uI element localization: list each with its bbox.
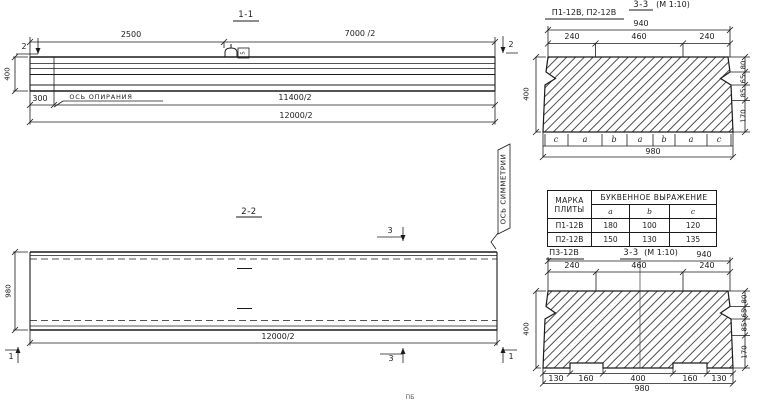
p12-dim-85: 85 [741, 88, 748, 97]
p3-dim-85: 85 [742, 323, 749, 332]
p3-b130-left: 130 [548, 375, 563, 383]
cut-1-right-label: 1 [508, 353, 513, 361]
table-row: П1-12В 180 100 120 [548, 219, 717, 233]
p3-seg-240-left: 240 [564, 262, 579, 270]
p12-dim-65: 65 [741, 74, 748, 83]
p12-letter-c2: c [717, 136, 721, 144]
dim-7000-2: 7000 /2 [345, 30, 376, 38]
cut-3-bottom-label: 3 [388, 355, 393, 363]
table-header-expression: БУКВЕННОЕ ВЫРАЖЕНИЕ [592, 191, 717, 205]
table-cell-a: 150 [592, 233, 630, 247]
dim-11400-2: 11400/2 [278, 94, 311, 102]
table-cell-a: 180 [592, 219, 630, 233]
p3-dim-65: 65 [742, 308, 749, 317]
dim-2500: 2500 [121, 31, 141, 39]
table-header-mark: МАРКА ПЛИТЫ [548, 191, 592, 219]
p12-dim-400: 400 [524, 87, 531, 100]
view-2-2-title: 2-2 [241, 208, 256, 217]
bearing-axis-label: ОСЬ ОПИРАНИЯ [69, 94, 132, 101]
section-p3-scale: (М 1:10) [644, 249, 678, 257]
p3-dim-940: 940 [696, 251, 711, 259]
table-header-mark-line2: ПЛИТЫ [548, 205, 591, 214]
section-p12-scale: (М 1:10) [656, 1, 690, 9]
lifting-loop-tag: 5 [241, 51, 247, 55]
dim-400-elevation: 400 [5, 67, 12, 80]
p3-seg-460: 460 [631, 262, 646, 270]
view-1-1-linework [12, 21, 518, 125]
dim-980-plan: 980 [6, 284, 13, 297]
table-cell-b: 130 [630, 233, 670, 247]
p12-dim-80: 80 [741, 60, 748, 69]
symmetry-axis-label: ОСЬ СИММЕТРИИ [501, 154, 508, 225]
table-cell-mark: П1-12В [548, 219, 592, 233]
drawing-sheet: 1-1 2500 7000 /2 2 2 400 300 ОСЬ ОПИРАНИ… [0, 0, 757, 404]
table-cell-b: 100 [630, 219, 670, 233]
p3-dim-80: 80 [742, 294, 749, 303]
p12-letter-c1: c [554, 136, 558, 144]
section-p12-title: 3-3 [633, 1, 648, 10]
dim-12000-2-elev: 12000/2 [279, 112, 312, 120]
p12-letter-a3: a [689, 136, 694, 144]
section-p3-linework [533, 257, 750, 387]
cut-2-left-label: 2 [21, 43, 26, 51]
p3-b130-right: 130 [711, 375, 726, 383]
view-2-2-linework [5, 217, 517, 363]
p12-seg-240-left: 240 [564, 33, 579, 41]
table-col-c: c [670, 205, 717, 219]
p12-letter-a1: a [583, 136, 588, 144]
section-p3-title: 3-3 [623, 249, 638, 258]
p12-dim-170: 170 [741, 109, 748, 122]
cut-3-top-label: 3 [387, 227, 392, 235]
cut-2-right-label: 2 [508, 41, 513, 49]
p3-b160-right: 160 [682, 375, 697, 383]
p3-b400: 400 [630, 375, 645, 383]
p3-dim-170: 170 [742, 345, 749, 358]
p3-dim-980: 980 [634, 385, 649, 393]
table-header-mark-line1: МАРКА [548, 196, 591, 205]
view-1-1-title: 1-1 [238, 11, 253, 20]
dim-12000-2-plan: 12000/2 [261, 333, 294, 341]
p12-dim-940: 940 [633, 20, 648, 28]
table-cell-c: 135 [670, 233, 717, 247]
p12-letter-b1: b [611, 136, 616, 144]
p3-dim-400: 400 [524, 322, 531, 335]
table-col-b: b [630, 205, 670, 219]
plate-spec-table: МАРКА ПЛИТЫ БУКВЕННОЕ ВЫРАЖЕНИЕ a b c П1… [547, 190, 717, 247]
p12-seg-460: 460 [631, 33, 646, 41]
cropped-bottom-text: ПБ [406, 395, 415, 401]
table-cell-c: 120 [670, 219, 717, 233]
table-cell-mark: П2-12В [548, 233, 592, 247]
p12-letter-b2: b [661, 136, 666, 144]
p3-b160-left: 160 [578, 375, 593, 383]
p12-dim-980: 980 [645, 148, 660, 156]
table-row: П2-12В 150 130 135 [548, 233, 717, 247]
section-p12-label: П1-12В, П2-12В [552, 9, 616, 17]
table-col-a: a [592, 205, 630, 219]
section-p3-label: П3-12В [549, 249, 579, 257]
cut-1-left-label: 1 [8, 353, 13, 361]
dim-300: 300 [32, 95, 47, 103]
p12-letter-a2: a [638, 136, 643, 144]
p12-seg-240-right: 240 [699, 33, 714, 41]
p3-seg-240-right: 240 [699, 262, 714, 270]
